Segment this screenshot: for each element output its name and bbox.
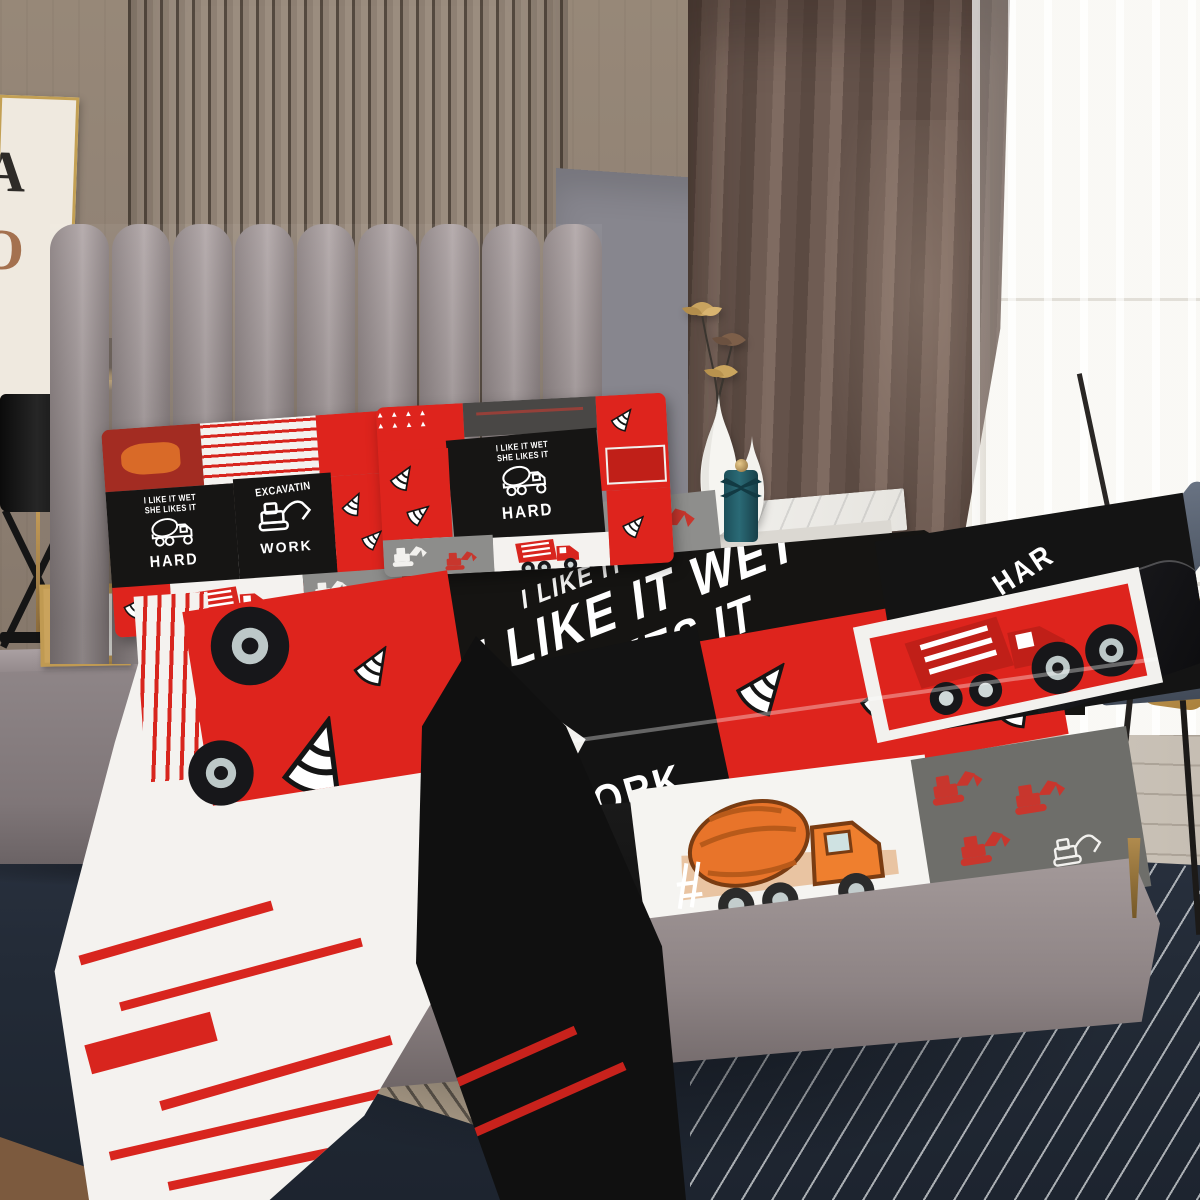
orange-truck-art [120, 441, 181, 476]
poster-letter: O [0, 215, 25, 284]
pillow-slogan-patch: I LIKE IT WET SHE LIKES IT HARD [105, 484, 239, 594]
cement-mixer-truck-icon [488, 458, 561, 500]
poster-letter: A [0, 137, 27, 205]
truck-wheel-icon [208, 604, 292, 688]
pillowcase-right: ▲ ▲ ▲ ▲ ▲ ▲ ▲ ▲ I LIKE IT WET SHE LIKES … [376, 393, 674, 578]
bedroom-photo: A O [0, 0, 1200, 1200]
curtain-sheen [820, 120, 990, 540]
red-truck-patch [606, 445, 667, 484]
truck-wheel-icon [186, 738, 256, 808]
pillow-slogan-patch: I LIKE IT WET SHE LIKES IT HARD [445, 428, 604, 546]
pillow-excavatin-patch: EXCAVATIN WORK [232, 473, 338, 587]
excavator-icon [250, 494, 318, 537]
bottle-gold-cap [735, 459, 748, 472]
cement-mixer-truck-icon [139, 512, 205, 550]
dump-truck-icon [499, 532, 605, 572]
